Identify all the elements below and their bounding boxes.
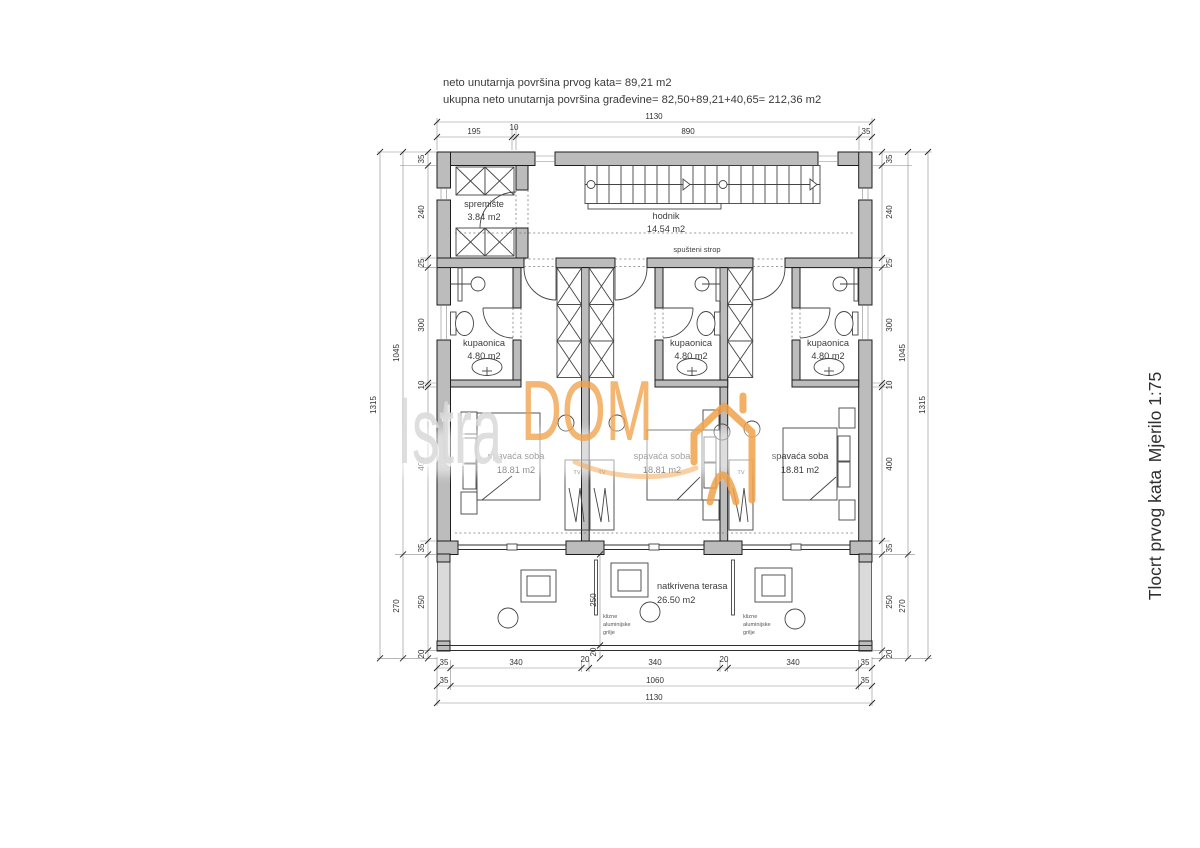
shutter-note-1-line2: aluminijske [603,622,631,628]
dim-top-total: 1130 [645,112,663,121]
dim-bottom-340c: 340 [786,658,800,667]
dim-right-20: 20 [885,649,894,658]
terrace-wall-sliding-doors [437,541,872,555]
terrace-table-1 [521,570,556,602]
header-total-area-line: ukupna neto unutarnja površina građevine… [443,94,821,106]
dim-right-total: 1315 [918,396,927,414]
terrace-table-2 [611,563,648,597]
room-label-terasa-area: 26.50 m2 [657,595,695,605]
bathroom-walls [451,268,859,387]
room-label-kupaonica-1-area: 4.80 m2 [467,351,500,361]
dim-top-195: 195 [467,127,481,136]
room-label-terasa-name: natkrivena terasa [657,581,728,591]
terrace-chair-2 [640,602,660,622]
room-label-spavaca-3-area: 18.81 m2 [781,465,819,475]
dim-bottom-mid-1060: 1060 [646,676,664,685]
dim-right-270: 270 [898,599,907,613]
plan-title: Tlocrt prvog kata [1145,470,1165,601]
dim-right-35a: 35 [885,154,894,163]
terrace [437,554,872,651]
dim-left-250: 250 [417,595,426,609]
dim-bottom-20b: 20 [720,655,729,664]
plan-scale: Mjerilo 1:75 [1145,372,1165,462]
dim-right-1045: 1045 [898,344,907,362]
floor-plan-drawing: neto unutarnja površina prvog kata= 89,2… [0,0,1200,848]
staircase [585,166,820,210]
terrace-chair-3 [785,609,805,629]
shutter-note-2-line2: aluminijske [743,622,771,628]
room-label-spremiste-name: spremište [464,199,504,209]
dim-right-400: 400 [885,457,894,471]
dim-right-25: 25 [885,258,894,267]
dim-bottom-35a: 35 [440,658,449,667]
watermark-dom: DOM [521,364,653,459]
shutter-panel-2 [732,560,735,615]
dim-terrace-edge: 20 [589,647,598,656]
dim-left-1045: 1045 [392,344,401,362]
dim-bottom-mid-35a: 35 [440,676,449,685]
room-label-hodnik-area: 14.54 m2 [647,224,685,234]
title-block: Tlocrt prvog kata Mjerilo 1:75 [1145,372,1165,600]
shutter-note-1-line1: klizne [603,614,617,620]
header-net-area-line: neto unutarnja površina prvog kata= 89,2… [443,77,672,89]
room-label-kupaonica-3-area: 4.80 m2 [811,351,844,361]
dim-top-10: 10 [510,123,519,132]
dim-left-240: 240 [417,205,426,219]
dim-bottom-340b: 340 [648,658,662,667]
dim-bottom-mid-35b: 35 [861,676,870,685]
room-label-kupaonica-1-name: kupaonica [463,338,506,348]
dim-right-250: 250 [885,595,894,609]
dimensions-right: 35 240 25 300 10 400 35 250 20 1045 270 … [872,149,932,661]
stair-direction-arrow-2 [810,179,817,190]
dim-bottom-340a: 340 [509,658,523,667]
dim-right-300: 300 [885,318,894,332]
dim-left-35a: 35 [417,154,426,163]
dim-bottom-total: 1130 [645,693,663,702]
stair-start-post-2 [719,181,727,189]
dim-left-20: 20 [417,649,426,658]
dim-left-total: 1315 [369,396,378,414]
terrace-table-3 [755,568,792,602]
stair-direction-arrow-1 [683,179,690,190]
dim-terrace-depth: 250 [589,593,598,607]
corridor-wall [437,258,872,268]
room-label-kupaonica-3-name: kupaonica [807,338,850,348]
dim-left-25: 25 [417,258,426,267]
room-label-kupaonica-2-area: 4.80 m2 [674,351,707,361]
dim-right-35b: 35 [885,543,894,552]
shutter-note-1-line3: grilje [603,630,615,636]
dim-right-240: 240 [885,205,894,219]
floor-plan-page: neto unutarnja površina prvog kata= 89,2… [0,0,1200,848]
dimensions-top: 1130 195 10 890 35 [434,112,875,150]
shutter-note-2-line3: grilje [743,630,755,636]
dim-bottom-35b: 35 [861,658,870,667]
dim-left-270: 270 [392,599,401,613]
bed-3 [783,428,837,500]
room-label-hodnik-name: hodnik [652,211,679,221]
header-area-summary: neto unutarnja površina prvog kata= 89,2… [443,77,821,106]
room-label-kupaonica-2-name: kupaonica [670,338,713,348]
dim-right-10: 10 [885,380,894,389]
shutter-note-2-line1: klizne [743,614,757,620]
room-label-spremiste-area: 3.84 m2 [467,212,500,222]
dim-left-300: 300 [417,318,426,332]
dim-left-35b: 35 [417,543,426,552]
dim-top-35: 35 [862,127,871,136]
room-label-spavaca-3-name: spavaća soba [772,451,830,461]
dim-top-890: 890 [681,127,695,136]
terrace-chair-1 [498,608,518,628]
dimensions-bottom: 35 340 20 340 20 340 35 35 1060 35 1130 [434,655,875,706]
note-dropped-ceiling: spušteni strop [673,245,720,254]
stair-railing [588,204,721,210]
watermark-istra: Istra [397,378,502,484]
stair-start-post-1 [587,181,595,189]
